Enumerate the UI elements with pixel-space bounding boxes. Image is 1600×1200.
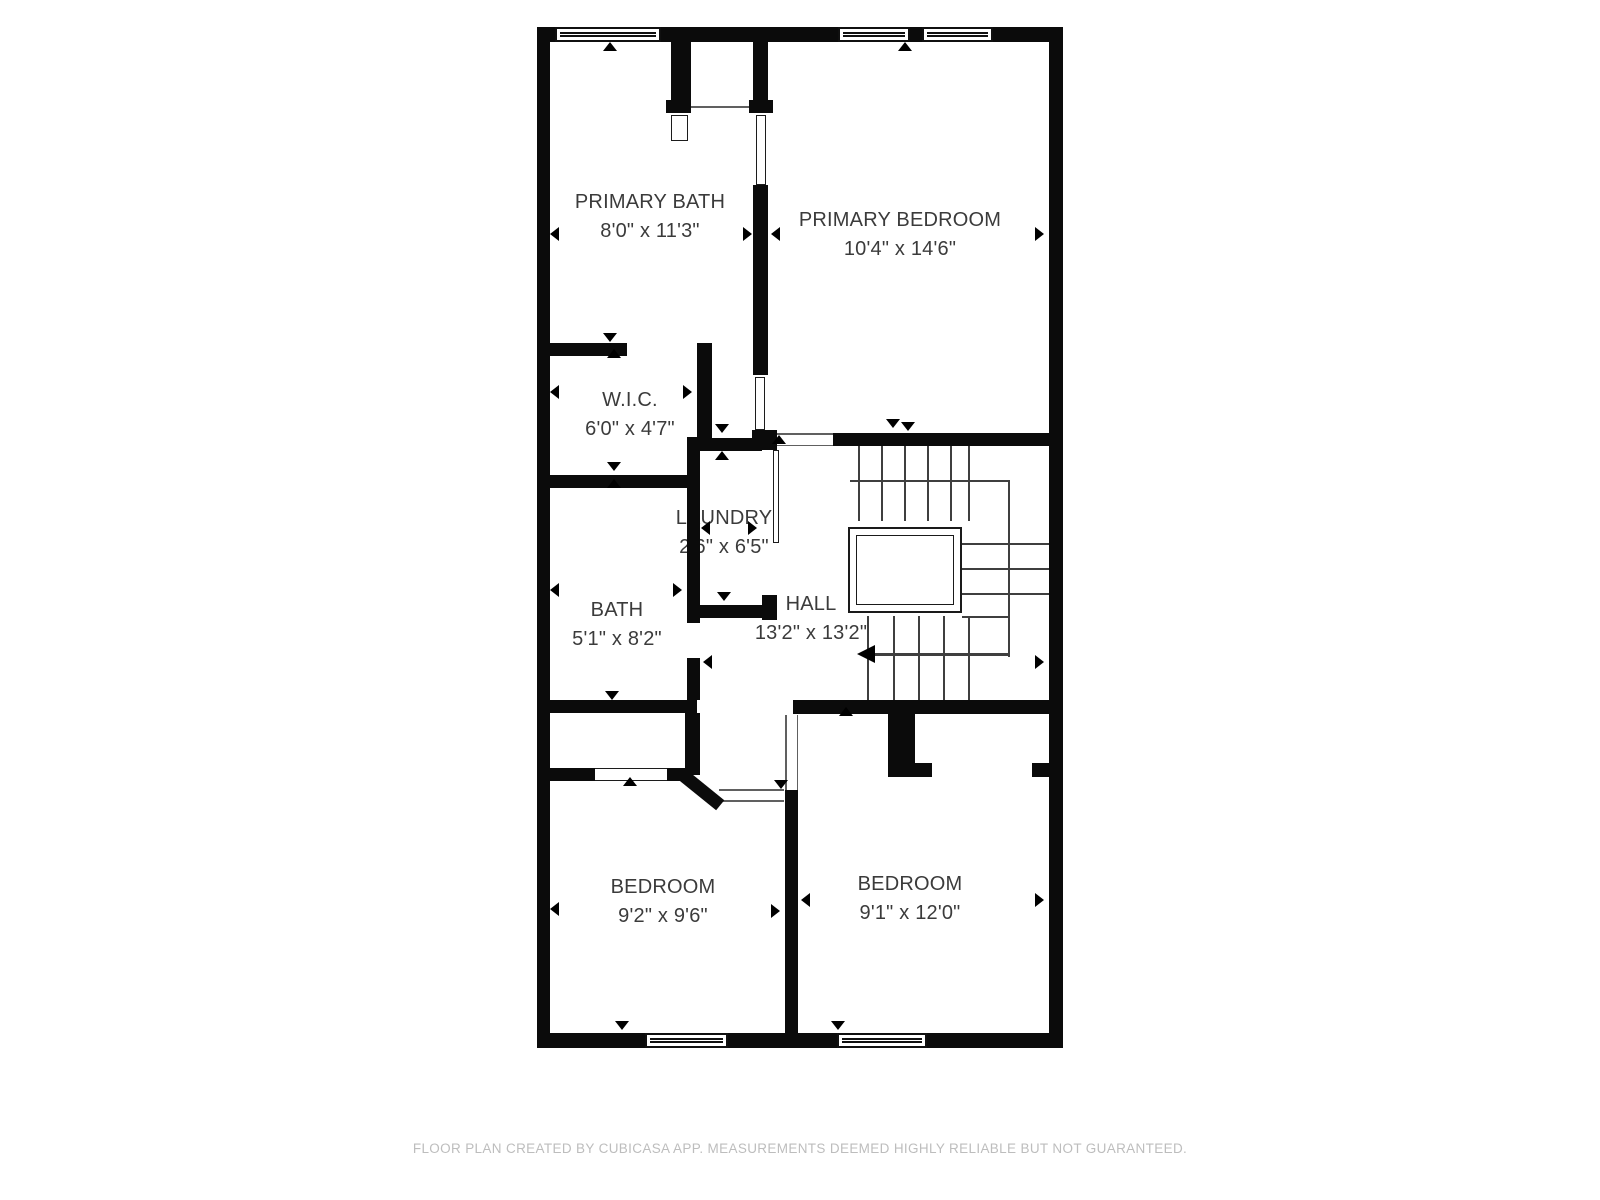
dimension-arrow xyxy=(550,227,559,241)
dimension-arrow xyxy=(748,521,757,535)
room-dims: 5'1" x 8'2" xyxy=(572,625,662,654)
dimension-arrow xyxy=(743,227,752,241)
wall-segment xyxy=(785,790,798,1033)
room-name: PRIMARY BATH xyxy=(575,188,725,217)
dimension-arrow xyxy=(1035,893,1044,907)
floor-plan: PRIMARY BATH 8'0" x 11'3" PRIMARY BEDROO… xyxy=(537,27,1063,1048)
wall-segment-diagonal xyxy=(679,770,724,810)
dimension-arrow xyxy=(772,435,786,444)
dimension-arrow xyxy=(1035,655,1044,669)
wall-segment xyxy=(1032,763,1049,777)
dimension-arrow xyxy=(550,902,559,916)
dimension-arrow xyxy=(771,904,780,918)
room-name: BATH xyxy=(572,596,662,625)
stair-tread xyxy=(968,616,970,700)
wall-segment xyxy=(753,185,768,375)
wall-segment xyxy=(687,658,700,700)
dimension-arrow xyxy=(886,419,900,428)
wall-segment xyxy=(661,27,838,42)
door-opening-line xyxy=(797,715,799,790)
wall-segment xyxy=(749,100,773,113)
door-leaf xyxy=(671,115,688,141)
dimension-arrow xyxy=(683,385,692,399)
wall-segment xyxy=(687,437,700,623)
stair-tread xyxy=(968,446,970,521)
window xyxy=(645,1033,728,1048)
cased-opening-line xyxy=(719,800,784,802)
dimension-arrow xyxy=(701,521,710,535)
room-name: BEDROOM xyxy=(858,870,963,899)
room-name: BEDROOM xyxy=(611,873,716,902)
dimension-arrow xyxy=(550,385,559,399)
window xyxy=(837,1033,927,1048)
dimension-arrow xyxy=(898,42,912,51)
dimension-arrow xyxy=(703,655,712,669)
dimension-arrow xyxy=(607,462,621,471)
room-dims: 9'2" x 9'6" xyxy=(611,902,716,931)
room-dims: 8'0" x 11'3" xyxy=(575,217,725,246)
stair-tread xyxy=(858,446,860,521)
room-dims: 9'1" x 12'0" xyxy=(858,899,963,928)
stair-tread xyxy=(893,616,895,700)
wall-segment xyxy=(537,1033,645,1048)
room-label-primary-bath: PRIMARY BATH 8'0" x 11'3" xyxy=(575,188,725,246)
wall-segment xyxy=(666,100,691,113)
wall-segment xyxy=(697,343,712,440)
room-label-bedroom-right: BEDROOM 9'1" x 12'0" xyxy=(858,870,963,928)
stair-tread xyxy=(850,480,1008,482)
dimension-arrow xyxy=(605,691,619,700)
wall-segment xyxy=(685,713,700,775)
stair-tread xyxy=(943,616,945,700)
wall-segment xyxy=(927,1033,1063,1048)
door-leaf xyxy=(773,450,779,543)
wall-segment xyxy=(537,27,550,1048)
room-label-bath: BATH 5'1" x 8'2" xyxy=(572,596,662,654)
wall-segment xyxy=(671,42,691,100)
dimension-arrow xyxy=(831,1021,845,1030)
room-name: PRIMARY BEDROOM xyxy=(799,206,1001,235)
wall-segment xyxy=(753,42,768,100)
dimension-arrow xyxy=(607,349,621,358)
wall-segment xyxy=(793,700,1049,714)
stair-tread xyxy=(904,446,906,521)
dimension-arrow xyxy=(550,583,559,597)
stair-tread xyxy=(918,616,920,700)
dimension-arrow xyxy=(774,780,788,789)
dimension-arrow xyxy=(717,592,731,601)
dimension-arrow xyxy=(839,707,853,716)
room-dims: 6'0" x 4'7" xyxy=(585,415,675,444)
wall-segment xyxy=(833,433,1049,446)
window xyxy=(922,27,993,42)
door-leaf xyxy=(756,115,766,185)
stair-tread xyxy=(962,568,1049,570)
stair-void-inner xyxy=(856,535,954,605)
dimension-arrow xyxy=(603,333,617,342)
dimension-arrow xyxy=(1035,227,1044,241)
footer-disclaimer: FLOOR PLAN CREATED BY CUBICASA APP. MEAS… xyxy=(413,1141,1187,1156)
door-opening-line xyxy=(777,445,833,447)
dimension-arrow xyxy=(673,583,682,597)
wall-segment xyxy=(888,763,932,777)
opening-line xyxy=(691,106,749,108)
window xyxy=(838,27,910,42)
door-opening-line xyxy=(785,715,787,790)
wall-segment xyxy=(537,700,697,713)
wall-segment xyxy=(687,605,777,618)
stair-tread xyxy=(950,446,952,521)
dimension-arrow xyxy=(715,424,729,433)
stair-tread xyxy=(962,593,1049,595)
stair-tread xyxy=(927,446,929,521)
room-dims: 13'2" x 13'2" xyxy=(755,619,867,648)
door-leaf xyxy=(755,377,765,430)
stair-tread xyxy=(881,446,883,521)
dimension-arrow xyxy=(801,893,810,907)
dimension-arrow xyxy=(771,227,780,241)
wall-segment xyxy=(910,27,922,42)
dimension-arrow xyxy=(607,479,621,488)
room-label-wic: W.I.C. 6'0" x 4'7" xyxy=(585,386,675,444)
wall-segment xyxy=(537,768,595,781)
room-label-bedroom-left: BEDROOM 9'2" x 9'6" xyxy=(611,873,716,931)
room-name: W.I.C. xyxy=(585,386,675,415)
dimension-arrow xyxy=(615,1021,629,1030)
wall-segment xyxy=(695,438,762,451)
dimension-arrow xyxy=(623,777,637,786)
stair-tread xyxy=(962,543,1049,545)
stair-direction-line xyxy=(875,653,1008,656)
cased-opening-line xyxy=(719,789,784,791)
wall-segment xyxy=(888,714,915,764)
dimension-arrow xyxy=(715,451,729,460)
dimension-arrow xyxy=(603,42,617,51)
wall-segment xyxy=(1049,27,1063,1048)
room-label-primary-bedroom: PRIMARY BEDROOM 10'4" x 14'6" xyxy=(799,206,1001,264)
wall-segment xyxy=(728,1033,837,1048)
dimension-arrow xyxy=(901,422,915,431)
room-dims: 10'4" x 14'6" xyxy=(799,235,1001,264)
window xyxy=(555,27,661,42)
